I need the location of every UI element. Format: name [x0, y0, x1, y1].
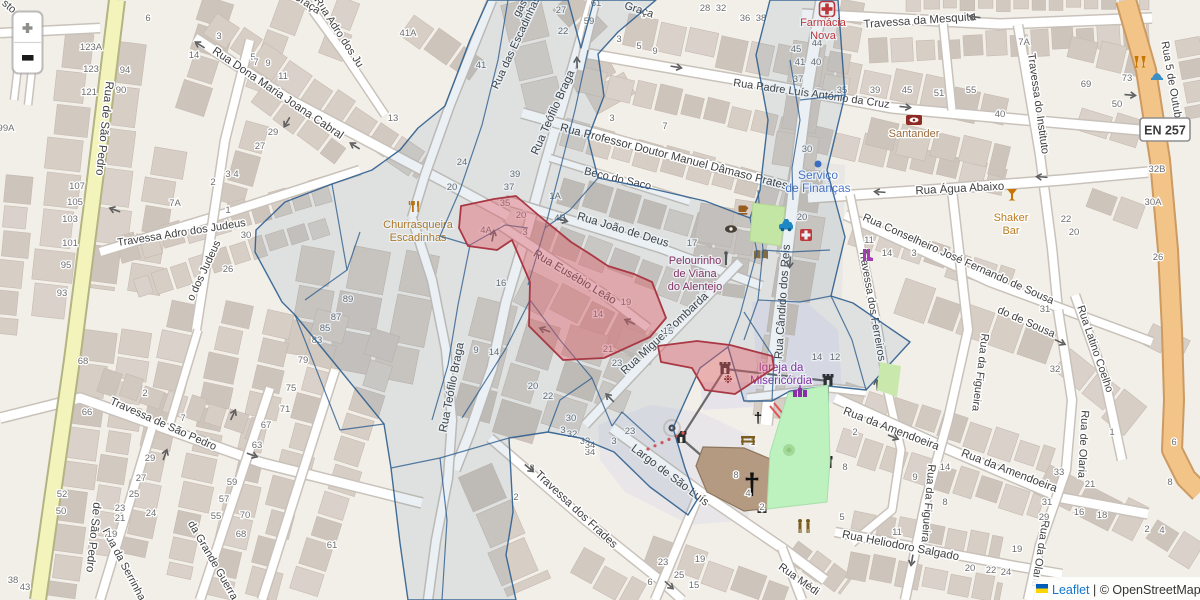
svg-text:7: 7	[253, 57, 258, 68]
svg-text:3: 3	[609, 113, 614, 124]
svg-text:2: 2	[513, 492, 518, 503]
svg-text:Santander: Santander	[889, 128, 940, 140]
svg-text:8: 8	[942, 497, 947, 508]
svg-text:27: 27	[255, 141, 266, 152]
svg-text:2: 2	[852, 427, 857, 438]
svg-text:Shaker: Shaker	[994, 212, 1029, 224]
svg-text:123A: 123A	[80, 42, 103, 53]
svg-text:68: 68	[236, 529, 247, 540]
svg-text:7: 7	[662, 121, 667, 132]
svg-text:22: 22	[986, 565, 997, 576]
svg-text:5: 5	[636, 41, 641, 52]
svg-text:20: 20	[965, 563, 976, 574]
svg-text:31: 31	[1040, 304, 1051, 315]
svg-text:EN 257: EN 257	[1144, 124, 1186, 138]
svg-text:73: 73	[1122, 73, 1133, 84]
svg-text:6: 6	[1171, 437, 1176, 448]
svg-text:36: 36	[740, 13, 751, 24]
svg-text:103: 103	[62, 214, 78, 225]
svg-text:107: 107	[69, 181, 85, 192]
svg-text:50: 50	[1112, 99, 1123, 110]
svg-text:21: 21	[1085, 479, 1096, 490]
svg-text:30A: 30A	[1145, 197, 1163, 208]
svg-text:29: 29	[268, 127, 279, 138]
svg-text:24: 24	[1001, 567, 1012, 578]
svg-text:1: 1	[225, 205, 230, 216]
svg-text:8: 8	[733, 470, 738, 481]
svg-text:4: 4	[745, 488, 750, 499]
svg-text:23: 23	[658, 557, 669, 568]
svg-text:2: 2	[759, 502, 764, 513]
svg-text:66: 66	[82, 407, 93, 418]
svg-text:99A: 99A	[0, 123, 15, 134]
svg-text:9: 9	[912, 472, 917, 483]
svg-text:7A: 7A	[1018, 37, 1030, 48]
svg-text:14: 14	[189, 50, 200, 61]
svg-text:33: 33	[1054, 467, 1065, 478]
svg-text:19: 19	[107, 529, 118, 540]
svg-text:93: 93	[57, 288, 68, 299]
svg-text:14: 14	[882, 248, 893, 259]
svg-text:6: 6	[647, 577, 652, 588]
svg-text:90: 90	[116, 85, 127, 96]
svg-text:11: 11	[892, 527, 902, 538]
svg-text:8: 8	[1167, 477, 1172, 488]
svg-text:32B: 32B	[1149, 164, 1166, 175]
svg-text:25: 25	[129, 489, 140, 500]
svg-text:15: 15	[689, 580, 700, 591]
svg-text:59: 59	[227, 477, 238, 488]
svg-text:41A: 41A	[400, 28, 418, 39]
svg-text:Leaflet | © OpenStreetMap: Leaflet | © OpenStreetMap	[1052, 583, 1200, 597]
svg-text:5: 5	[839, 512, 844, 523]
svg-text:7: 7	[180, 413, 185, 424]
svg-text:†: †	[754, 410, 762, 427]
svg-text:105: 105	[67, 197, 83, 208]
svg-text:95: 95	[61, 260, 72, 271]
svg-text:30: 30	[241, 230, 252, 241]
svg-text:39: 39	[870, 85, 881, 96]
svg-text:38: 38	[8, 575, 19, 586]
svg-text:2: 2	[142, 388, 147, 399]
svg-text:69: 69	[1081, 79, 1092, 90]
svg-text:13: 13	[388, 113, 399, 124]
svg-text:32: 32	[1050, 364, 1061, 375]
svg-text:3: 3	[616, 34, 621, 45]
svg-text:29: 29	[145, 453, 156, 464]
svg-text:20: 20	[1069, 227, 1080, 238]
svg-text:43: 43	[20, 582, 31, 593]
svg-text:50: 50	[56, 506, 67, 517]
svg-text:26: 26	[223, 264, 234, 275]
svg-text:55: 55	[211, 511, 222, 522]
svg-text:68: 68	[78, 356, 89, 367]
svg-text:61: 61	[327, 540, 338, 551]
svg-text:14: 14	[940, 462, 951, 473]
svg-text:1: 1	[1109, 427, 1114, 438]
svg-text:40: 40	[995, 109, 1006, 120]
svg-text:79: 79	[298, 355, 309, 366]
svg-text:25: 25	[674, 570, 685, 581]
svg-text:16: 16	[1074, 507, 1085, 518]
svg-text:Bar: Bar	[1002, 225, 1019, 237]
svg-text:75: 75	[286, 383, 297, 394]
svg-text:29: 29	[1039, 512, 1050, 523]
svg-text:❉: ❉	[723, 374, 732, 386]
svg-text:19: 19	[1012, 544, 1023, 555]
svg-text:71: 71	[280, 404, 291, 415]
svg-text:3: 3	[216, 31, 221, 42]
svg-text:94: 94	[120, 65, 131, 76]
svg-text:3: 3	[911, 248, 916, 259]
svg-text:9: 9	[652, 46, 657, 57]
svg-text:19: 19	[695, 554, 706, 565]
svg-text:31: 31	[1042, 497, 1053, 508]
svg-text:101: 101	[62, 238, 78, 249]
svg-text:121: 121	[81, 87, 97, 98]
svg-text:24: 24	[146, 508, 157, 519]
svg-text:2: 2	[1144, 524, 1149, 535]
svg-text:2: 2	[210, 177, 215, 188]
svg-text:9: 9	[265, 58, 270, 69]
svg-text:4: 4	[1159, 525, 1164, 536]
svg-text:51: 51	[934, 88, 945, 99]
svg-text:18: 18	[1097, 510, 1108, 521]
svg-text:26: 26	[1153, 252, 1164, 263]
svg-text:27: 27	[136, 473, 147, 484]
svg-text:63: 63	[252, 440, 263, 451]
svg-text:4: 4	[233, 169, 238, 180]
svg-text:67: 67	[261, 420, 272, 431]
svg-text:21: 21	[115, 513, 126, 524]
svg-text:70: 70	[240, 510, 251, 521]
svg-text:6: 6	[145, 13, 150, 24]
svg-text:123: 123	[83, 64, 99, 75]
svg-text:55: 55	[966, 85, 977, 96]
svg-text:28: 28	[700, 3, 711, 14]
svg-text:22: 22	[1061, 214, 1072, 225]
svg-text:11: 11	[864, 235, 874, 246]
svg-text:3: 3	[225, 169, 230, 180]
svg-text:8: 8	[842, 462, 847, 473]
svg-text:52: 52	[57, 489, 68, 500]
svg-text:45: 45	[902, 85, 913, 96]
svg-text:57: 57	[219, 494, 230, 505]
svg-text:11: 11	[278, 71, 288, 82]
svg-text:7A: 7A	[169, 198, 181, 209]
svg-text:32: 32	[716, 3, 727, 14]
